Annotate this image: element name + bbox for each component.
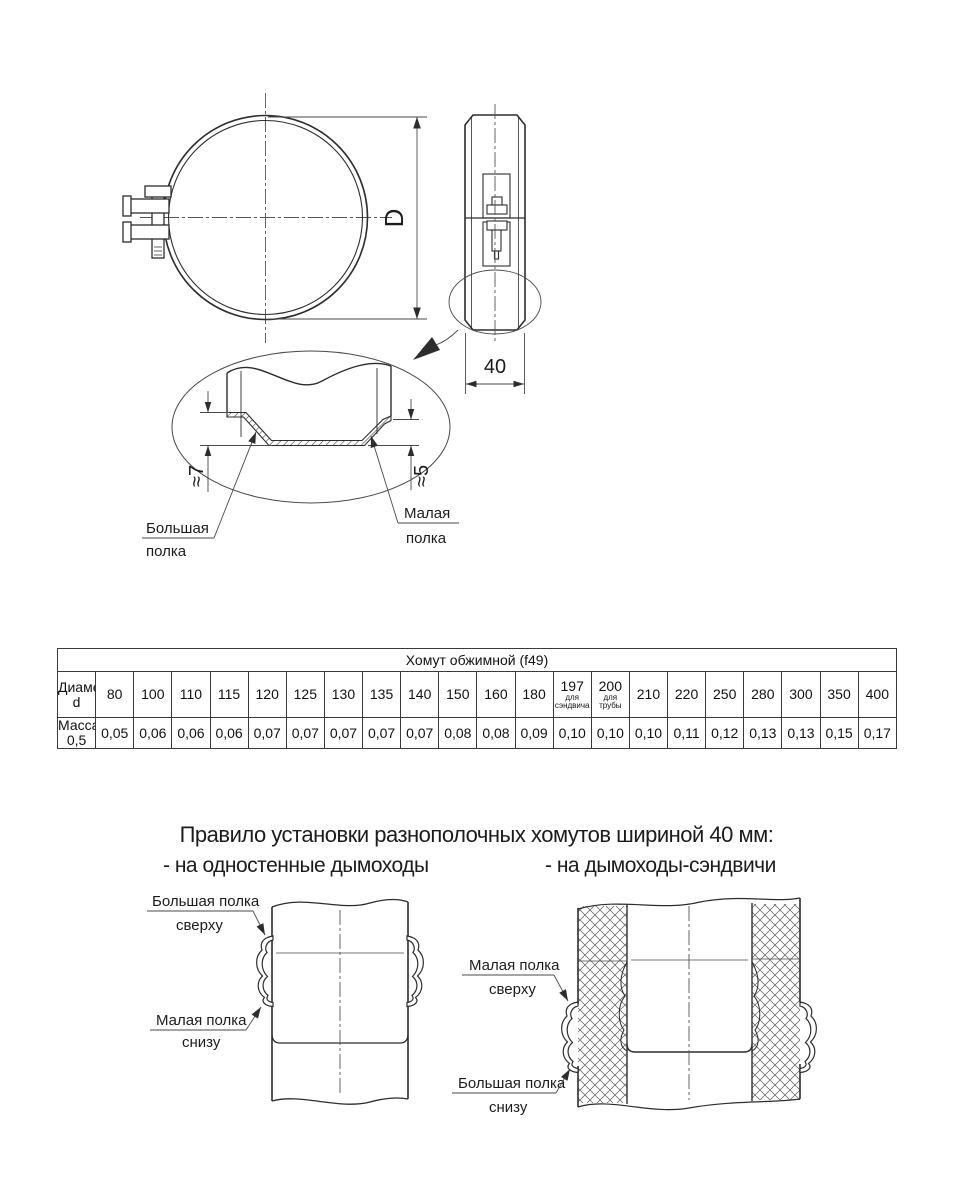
single-wall-bottom-label-line1: Малая полка: [156, 1012, 247, 1029]
mass-cell: 0,06: [210, 718, 248, 749]
mass-cell: 0,10: [629, 718, 667, 749]
dimension-D: D: [268, 117, 427, 319]
mass-cell: 0,07: [363, 718, 401, 749]
detail-callout-arrow-icon: [413, 337, 440, 360]
insulation-right: [752, 904, 800, 1100]
bolt-bar-lower: [487, 221, 507, 230]
diameter-cell: 130: [324, 672, 362, 718]
dimension-big-flange: ≈7: [186, 391, 272, 492]
sandwich-top-label-line1: Малая полка: [469, 957, 560, 974]
single-wall-bottom-label-line2: снизу: [182, 1034, 221, 1051]
mass-cell: 0,09: [515, 718, 553, 749]
mass-cell: 0,12: [706, 718, 744, 749]
mass-cell: 0,07: [401, 718, 439, 749]
diameter-cell: 400: [858, 672, 896, 718]
mass-cell: 0,06: [134, 718, 172, 749]
mass-cell: 0,17: [858, 718, 896, 749]
small-flange-label-line1: Малая: [404, 505, 450, 522]
rules-title: Правило установки разнополочных хомутов …: [0, 822, 953, 848]
big-flange-callout: Большая полка: [142, 432, 256, 560]
diameter-row-header: Диаметр d: [58, 672, 96, 718]
bolt-assembly: [123, 186, 171, 258]
mass-cell: 0,07: [286, 718, 324, 749]
width-dim-label: 40: [484, 356, 506, 378]
sandwich-clamp-left: [562, 1002, 578, 1073]
mass-cell: 0,08: [439, 718, 477, 749]
big-flange-dim-label: ≈7: [186, 465, 208, 487]
liner-socket-bottom: [627, 1044, 752, 1052]
sandwich-bottom-label-line1: Большая полка: [458, 1075, 566, 1092]
diameter-cell: 350: [820, 672, 858, 718]
single-wall-heading: - на одностенные дымоходы: [163, 854, 429, 878]
clamp-side-view: [413, 104, 541, 360]
mass-cell: 0,10: [591, 718, 629, 749]
diameter-cell: 220: [668, 672, 706, 718]
diameter-cell: 135: [363, 672, 401, 718]
diameter-dim-label: D: [379, 209, 409, 228]
diameter-cell: 150: [439, 672, 477, 718]
big-flange-label-line2: полка: [146, 543, 187, 560]
mass-cell: 0,10: [553, 718, 591, 749]
sandwich-labels: Малая полка сверху Большая полка снизу: [452, 957, 570, 1116]
upper-lug: [130, 199, 169, 213]
band-detail-view: [172, 351, 450, 503]
mass-cell: 0,05: [96, 718, 134, 749]
diameter-cell: 210: [629, 672, 667, 718]
single-wall-diagram: [257, 900, 424, 1105]
mass-cell: 0,13: [782, 718, 820, 749]
single-wall-labels: Большая полка сверху Малая полка снизу: [147, 893, 265, 1051]
bolt-head: [145, 186, 171, 197]
mass-cell: 0,06: [172, 718, 210, 749]
bolt-stem: [492, 230, 501, 251]
installation-diagrams: Большая полка сверху Малая полка снизу: [0, 885, 953, 1130]
pipe-top-break: [272, 900, 408, 908]
detail-callout-leader: [436, 330, 458, 345]
diameter-cell: 100: [134, 672, 172, 718]
single-wall-top-label-line2: сверху: [176, 917, 223, 934]
table-title-cell: Хомут обжимной (f49): [58, 649, 897, 672]
detail-view-ellipse: [172, 351, 450, 503]
mass-cell: 0,08: [477, 718, 515, 749]
diameter-cell: 80: [96, 672, 134, 718]
mass-cell: 0,07: [324, 718, 362, 749]
diameter-cell: 160: [477, 672, 515, 718]
diameter-cell: 125: [286, 672, 324, 718]
bolt-bar-upper: [487, 205, 507, 214]
single-wall-top-label-line1: Большая полка: [152, 893, 260, 910]
small-flange-dim-label: ≈5: [411, 465, 433, 487]
bolt-neck: [492, 197, 502, 205]
lower-tab: [123, 222, 131, 242]
clamp-profile-right: [407, 936, 423, 1007]
mass-cell: 0,15: [820, 718, 858, 749]
spec-table: Хомут обжимной (f49) Диаметр d 801001101…: [57, 648, 897, 749]
mass-cell: 0,07: [248, 718, 286, 749]
pipe-break-line: [227, 363, 391, 384]
mass-row: Масса 0,5 0,050,060,060,060,070,070,070,…: [58, 718, 897, 749]
diameter-cell: 180: [515, 672, 553, 718]
diameter-cell: 280: [744, 672, 782, 718]
insulation-left: [578, 906, 627, 1103]
diameter-cell: 200длятрубы: [591, 672, 629, 718]
clamp-spec-sheet: D: [0, 0, 953, 1200]
sandwich-clamp-right: [800, 1002, 816, 1073]
pipe-bottom-break: [272, 1098, 408, 1104]
mass-cell: 0,11: [668, 718, 706, 749]
band-section-profile: [227, 413, 391, 446]
diameter-cell: 110: [172, 672, 210, 718]
diameter-cell: 120: [248, 672, 286, 718]
sandwich-bottom-label-line2: снизу: [489, 1099, 528, 1116]
table-title-row: Хомут обжимной (f49): [58, 649, 897, 672]
clamp-technical-drawing: D: [0, 90, 953, 570]
big-flange-label-line1: Большая: [146, 520, 209, 537]
lower-lug: [130, 225, 169, 239]
diameter-cell: 250: [706, 672, 744, 718]
clamp-profile-left: [257, 936, 273, 1007]
small-flange-label-line2: полка: [406, 530, 447, 547]
sandwich-heading: - на дымоходы-сэндвичи: [545, 854, 776, 878]
clamp-front-view: [123, 93, 392, 343]
mass-row-header: Масса 0,5: [58, 718, 96, 749]
diameter-cell: 197длясэндвича: [553, 672, 591, 718]
diameter-row: Диаметр d 801001101151201251301351401501…: [58, 672, 897, 718]
diameter-cell: 300: [782, 672, 820, 718]
upper-tab: [123, 196, 131, 216]
sandwich-top-label-line2: сверху: [489, 981, 536, 998]
dimension-40: 40: [466, 333, 525, 394]
mass-cell: 0,13: [744, 718, 782, 749]
diameter-cell: 115: [210, 672, 248, 718]
dimension-small-flange: ≈5: [368, 399, 433, 490]
sandwich-diagram: [562, 898, 817, 1110]
diameter-cell: 140: [401, 672, 439, 718]
